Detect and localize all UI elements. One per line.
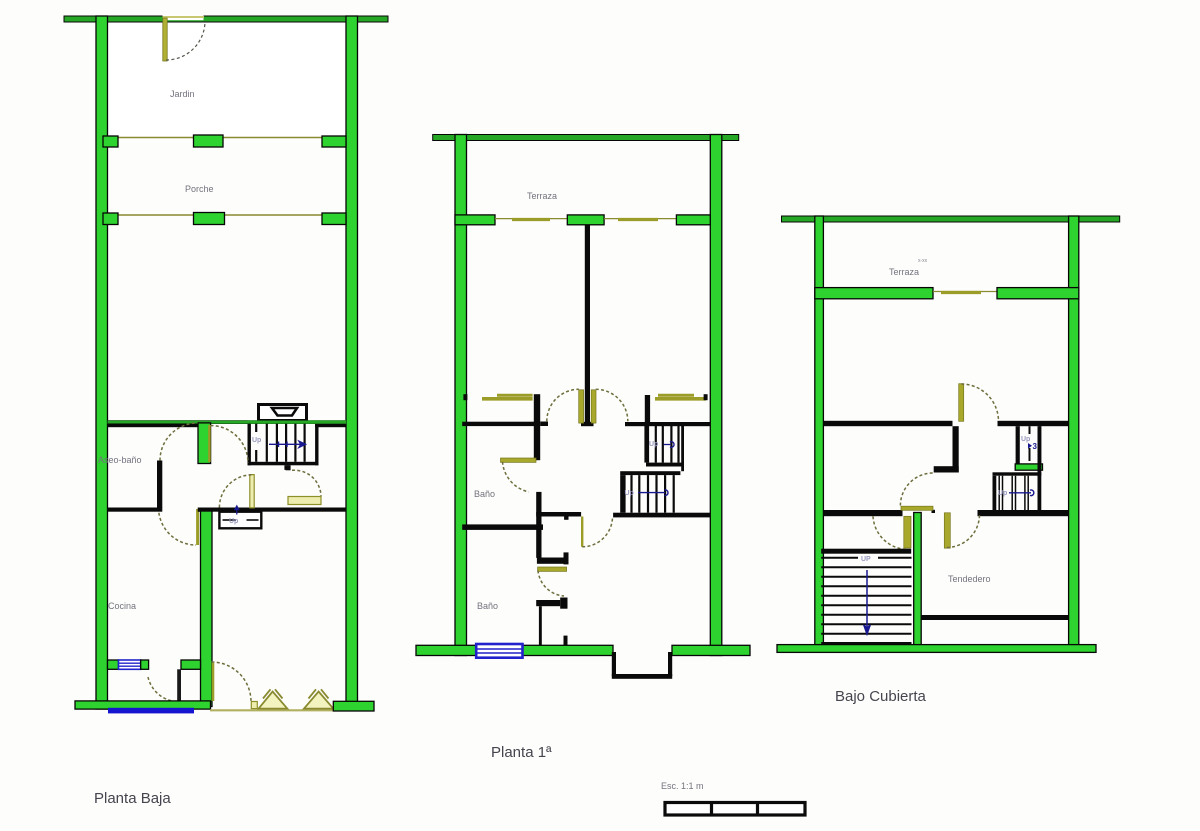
svg-text:Cocina: Cocina [108,601,136,611]
svg-text:Terraza: Terraza [527,191,557,201]
svg-text:Jardin: Jardin [170,89,195,99]
svg-text:x-xx: x-xx [918,258,928,264]
svg-text:3: 3 [1033,442,1038,451]
svg-text:Up: Up [1021,436,1030,443]
svg-text:Aseo-baño: Aseo-baño [98,455,142,465]
svg-text:Planta 1ª: Planta 1ª [491,744,552,761]
svg-text:Terraza: Terraza [889,267,919,277]
svg-text:Esc. 1:1 m: Esc. 1:1 m [661,781,704,791]
svg-text:Bajo Cubierta: Bajo Cubierta [835,688,927,705]
svg-text:Up: Up [998,490,1007,497]
svg-text:Up: Up [229,518,238,525]
svg-text:Up: Up [625,490,634,497]
svg-text:UP: UP [861,556,871,563]
svg-text:Baño: Baño [474,489,495,499]
svg-text:Porche: Porche [185,184,214,194]
svg-text:Planta Baja: Planta Baja [94,790,171,807]
svg-text:Baño: Baño [477,601,498,611]
svg-text:Up: Up [252,437,261,444]
svg-text:Up: Up [649,441,658,448]
svg-text:Tendedero: Tendedero [948,574,991,584]
